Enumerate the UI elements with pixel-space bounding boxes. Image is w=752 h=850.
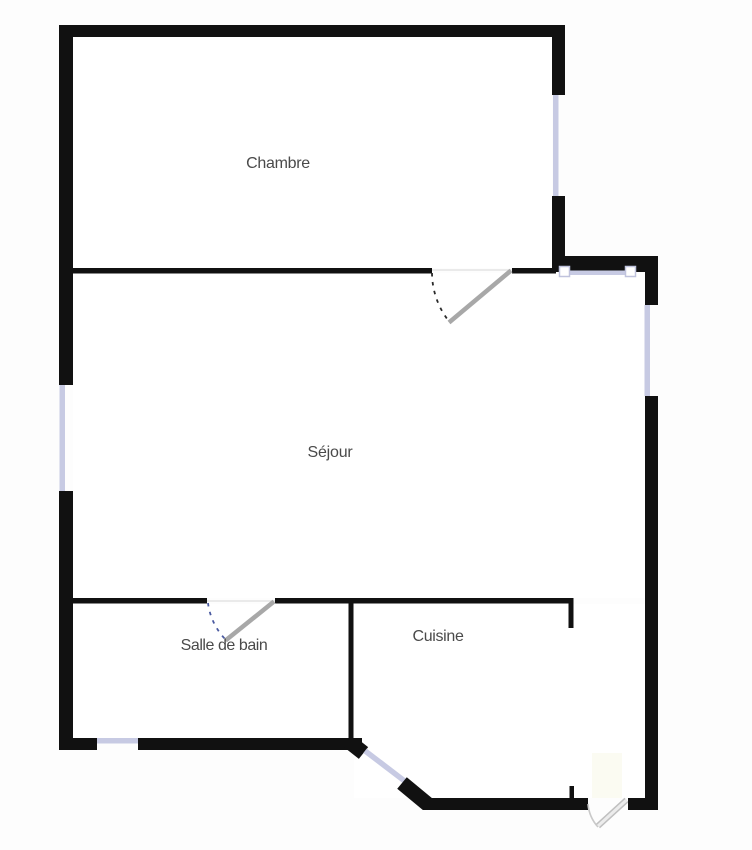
svg-text:Salle de bain: Salle de bain <box>181 637 268 654</box>
svg-text:Cuisine: Cuisine <box>412 628 463 645</box>
svg-text:Séjour: Séjour <box>307 444 353 461</box>
svg-text:Chambre: Chambre <box>246 155 310 172</box>
